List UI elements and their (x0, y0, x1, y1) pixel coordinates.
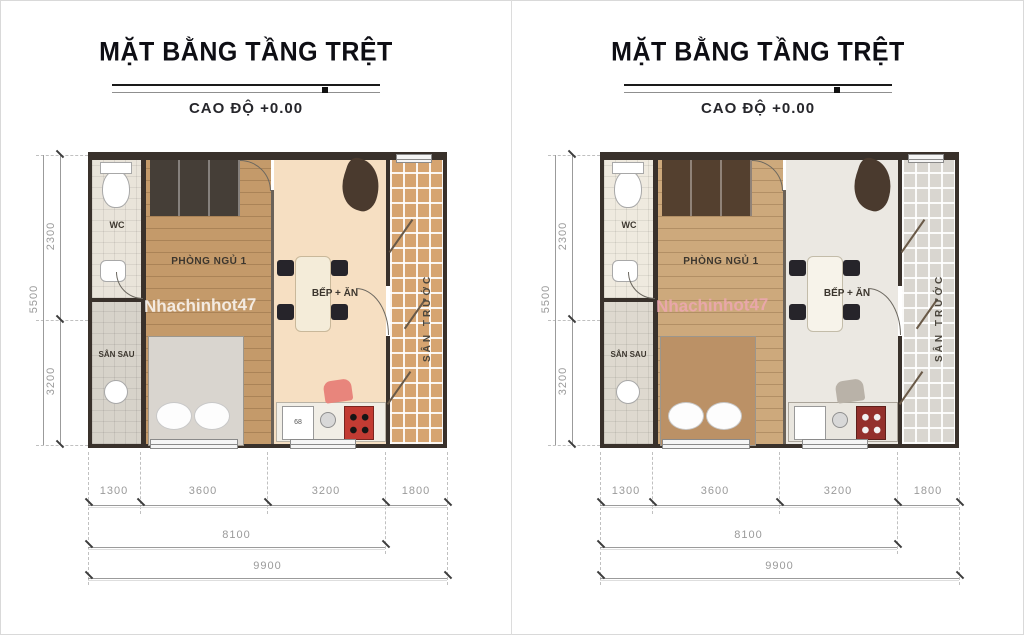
top-wall-inner (92, 156, 443, 160)
floorplan-panel-left: MẶT BẰNG TẦNG TRỆT CAO ĐỘ +0.00 WC SÂN S… (0, 0, 512, 635)
dim-line-subtotal (88, 547, 385, 548)
chair-icon-2 (789, 304, 806, 320)
window-icon-3 (396, 154, 432, 163)
dim-v-segment-1: 2300 (45, 208, 57, 264)
wardrobe-icon (150, 160, 240, 216)
dim-segment-1: 1300 (84, 485, 144, 497)
dim-segment-2: 3600 (173, 485, 233, 497)
toilet-tank-icon (100, 162, 132, 174)
ext-line (959, 452, 960, 585)
backyard-label: SÂN SAU (92, 350, 141, 359)
dim-segment-3: 3200 (296, 485, 356, 497)
ext-line (447, 452, 448, 585)
top-wall-inner (604, 156, 955, 160)
accent-chair-icon (835, 378, 866, 404)
pillow-icon-2 (194, 402, 230, 430)
kitchen-sink-icon (832, 412, 848, 428)
chair-icon-3 (843, 260, 860, 276)
chair-icon-4 (331, 304, 348, 320)
dim-total: 9900 (88, 560, 447, 572)
accent-chair-icon (323, 378, 354, 404)
bedroom-label: PHÒNG NGỦ 1 (148, 256, 270, 267)
washer-icon (104, 380, 128, 404)
appliance-icon (794, 406, 826, 440)
wc-backyard-wall (604, 298, 653, 302)
wc-backyard-wall (92, 298, 141, 302)
appliance-icon: 68 (282, 406, 314, 440)
floor-plan: WC SÂN SAU PHÒNG NGỦ 1 BẾP + ĂN SÂN TRƯỚ… (600, 152, 959, 448)
watermark-text: Nhachinhot47 (144, 295, 257, 317)
floorplan-panel-right: MẶT BẰNG TẦNG TRỆT CAO ĐỘ +0.00 WC SÂN S… (512, 0, 1024, 635)
dim-line-subtotal (600, 547, 897, 548)
window-icon-2 (290, 439, 356, 449)
plan-elevation-label: CAO ĐỘ +0.00 (94, 100, 398, 117)
wardrobe-icon (662, 160, 752, 216)
window-icon (150, 439, 238, 449)
toilet-icon (102, 170, 130, 208)
title-end-square (322, 87, 328, 93)
chair-icon-2 (277, 304, 294, 320)
chair-icon (277, 260, 294, 276)
title-underline (112, 84, 380, 86)
window-icon-3 (908, 154, 944, 163)
pillow-icon (156, 402, 192, 430)
title-underline (624, 84, 892, 86)
wc-label: WC (94, 220, 140, 230)
washer-icon (616, 380, 640, 404)
pillow-icon (668, 402, 704, 430)
bed-icon (660, 336, 756, 446)
window-icon (662, 439, 750, 449)
watermark-text: Nhachinhot47 (656, 295, 769, 317)
title-end-square (834, 87, 840, 93)
plan-title: MẶT BẰNG TẦNG TRỆT (606, 37, 910, 68)
stove-icon (344, 406, 374, 440)
front-yard-label: SÂN TRƯỚC (934, 248, 945, 388)
dim-v-total: 5500 (540, 271, 552, 327)
dim-line-total (600, 578, 959, 579)
chair-icon-3 (331, 260, 348, 276)
chair-icon (789, 260, 806, 276)
front-yard-label: SÂN TRƯỚC (422, 248, 433, 388)
dim-line-total (88, 578, 447, 579)
dim-line-v-segments (60, 155, 61, 445)
front-yard-zone (902, 156, 955, 444)
dim-subtotal: 8100 (88, 529, 385, 541)
plan-title: MẶT BẰNG TẦNG TRỆT (94, 37, 398, 68)
dim-subtotal: 8100 (600, 529, 897, 541)
toilet-tank-icon (612, 162, 644, 174)
bed-icon (148, 336, 244, 446)
wc-label: WC (606, 220, 652, 230)
dim-segment-1: 1300 (596, 485, 656, 497)
dim-segment-2: 3600 (685, 485, 745, 497)
dim-v-total: 5500 (28, 271, 40, 327)
toilet-icon (614, 170, 642, 208)
kitchen-sink-icon (320, 412, 336, 428)
dim-v-segment-2: 3200 (557, 353, 569, 409)
title-underline-2 (624, 92, 892, 93)
dim-segment-3: 3200 (808, 485, 868, 497)
dim-line-v-segments (572, 155, 573, 445)
stove-icon (856, 406, 886, 440)
bedroom-label: PHÒNG NGỦ 1 (660, 256, 782, 267)
plan-elevation-label: CAO ĐỘ +0.00 (606, 100, 910, 117)
backyard-zone (92, 302, 141, 444)
dim-line-v-total (555, 155, 556, 445)
backyard-label: SÂN SAU (604, 350, 653, 359)
dim-total: 9900 (600, 560, 959, 572)
dim-line-v-total (43, 155, 44, 445)
window-icon-2 (802, 439, 868, 449)
chair-icon-4 (843, 304, 860, 320)
dim-segment-4: 1800 (386, 485, 446, 497)
dim-v-segment-2: 3200 (45, 353, 57, 409)
dim-segment-4: 1800 (898, 485, 958, 497)
title-underline-2 (112, 92, 380, 93)
backyard-zone (604, 302, 653, 444)
front-yard-zone (390, 156, 443, 444)
pillow-icon-2 (706, 402, 742, 430)
floor-plan: WC SÂN SAU PHÒNG NGỦ 1 68 BẾP + ĂN SÂN T… (88, 152, 447, 448)
dim-v-segment-1: 2300 (557, 208, 569, 264)
